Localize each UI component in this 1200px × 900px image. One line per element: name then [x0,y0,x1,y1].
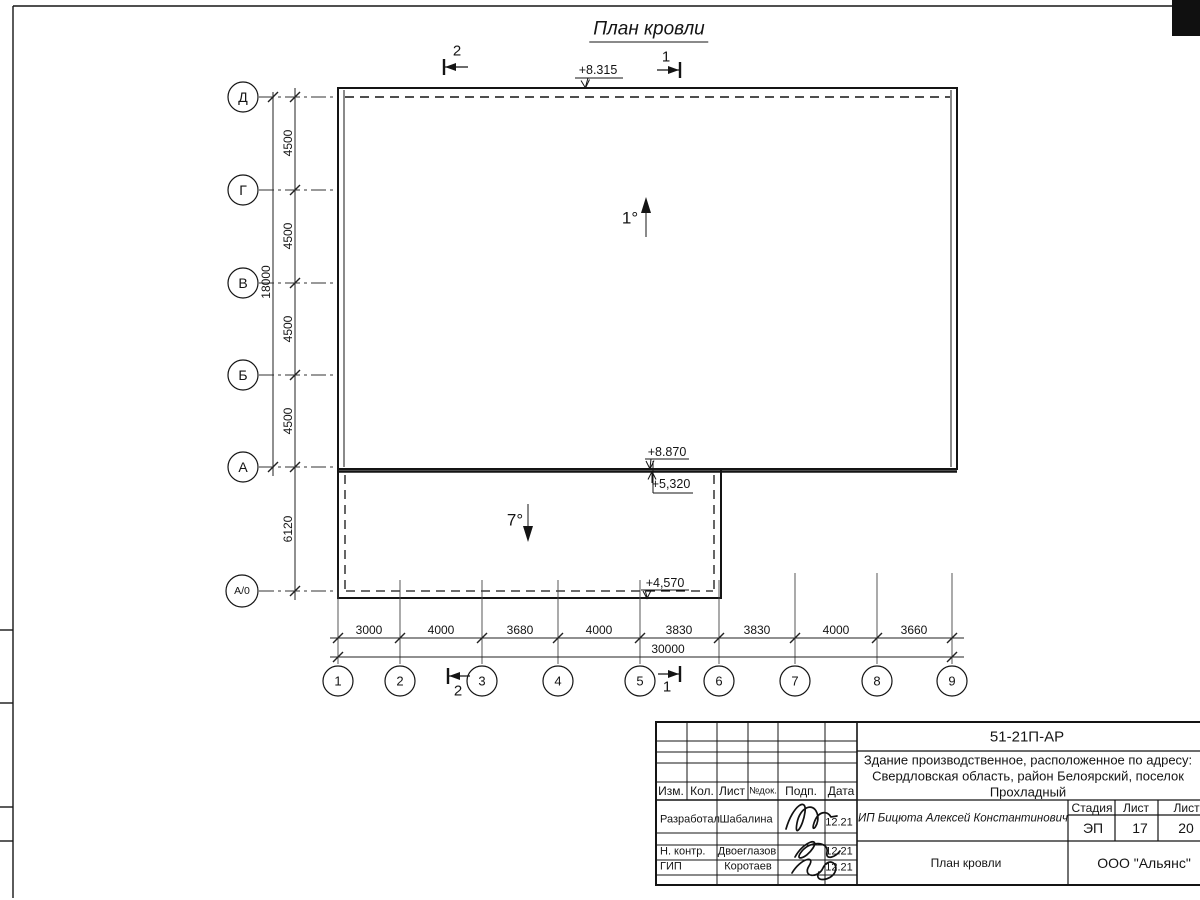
row-axis-label: А [238,460,247,474]
tb-stage-header: Стадия [1072,802,1113,814]
tb-date: 12.21 [825,847,853,858]
tb-header-list: Лист [719,785,745,797]
slope-label-annex: 7° [507,512,523,529]
elevation-label-annex-edge: +4,570 [646,577,685,590]
page-title: План кровли [589,20,708,43]
dim-bottom: 3830 [666,624,693,636]
tb-name: Шабалина [719,815,772,826]
col-axis-label: 9 [948,675,955,688]
tb-date: 12.21 [825,818,853,829]
dim-left: 4500 [282,316,294,343]
tb-sheet-value: 17 [1132,821,1148,835]
dim-bottom: 4000 [586,624,613,636]
col-axis-label: 2 [396,675,403,688]
tb-project-line: Свердловская область, район Белоярский, … [872,770,1184,783]
row-axis-label: Д [238,90,247,104]
dim-bottom: 3660 [901,624,928,636]
tb-project-line: Здание производственное, расположенное п… [864,754,1192,767]
tb-name: Коротаев [724,862,772,873]
tb-header-kol: Кол. [690,785,714,797]
tb-role: Н. контр. [660,847,705,858]
tb-sheets-value: 20 [1178,821,1194,835]
tb-stage-value: ЭП [1083,821,1103,835]
main-roof-outline [338,88,957,472]
slope-arrow-main [641,197,651,237]
elevation-label-annex-roof: +5,320 [652,478,691,491]
tb-role: ГИП [660,862,682,873]
row-axis-label: Б [238,368,247,382]
elevation-leader-wall-top [645,459,689,469]
slope-label-main: 1° [622,210,638,227]
dim-left: 4500 [282,223,294,250]
dim-bottom: 3000 [356,624,383,636]
dim-bottom: 3680 [507,624,534,636]
tb-date: 12.21 [825,863,853,874]
elevation-leader-top [575,78,623,88]
drawing-sheet: План кровли 2 1 2 1 +8.315 +8.870 +5,320… [0,0,1200,900]
tb-client: ИП Бицюта Алексей Константинович [858,813,1068,825]
dim-left-total: 18000 [260,265,272,298]
sheet-corner-mark [1172,0,1200,36]
col-axis-label: 8 [873,675,880,688]
dim-left: 4500 [282,408,294,435]
tb-project-line: Прохладный [990,786,1066,799]
col-axis-label: 5 [636,675,643,688]
tb-doc-title: План кровли [931,857,1002,869]
section-label-2-top: 2 [453,44,461,59]
tb-sheet-header: Лист [1123,802,1149,814]
dim-bottom: 4000 [428,624,455,636]
row-axis-label: Г [239,183,247,197]
tb-doc-number: 51-21П-АР [990,730,1064,745]
tb-name: Двоеглазов [718,847,776,858]
dim-bottom: 4000 [823,624,850,636]
tb-role: Разработал [660,815,720,826]
dim-left: 4500 [282,130,294,157]
tb-sheets-header: Листов [1174,802,1200,814]
dim-bottom: 3830 [744,624,771,636]
dim-bottom-total: 30000 [651,643,684,655]
row-axis-lines [259,97,335,591]
section-label-1-top: 1 [662,50,670,65]
elevation-label-wall-top: +8.870 [648,446,687,459]
col-axis-label: 7 [791,675,798,688]
col-axis-label: 4 [554,675,561,688]
tb-header-ndok: №док. [749,786,777,796]
section-mark-2-top [444,59,468,75]
section-label-1-bottom: 1 [663,680,671,695]
row-axis-label: В [238,276,247,290]
col-axis-label: 6 [715,675,722,688]
tb-header-data: Дата [828,785,855,797]
dim-left-annex: 6120 [282,516,294,543]
slope-arrow-annex [523,504,533,542]
tb-header-podp: Подп. [785,785,817,797]
col-axis-label: 3 [478,675,485,688]
tb-header-izm: Изм. [658,785,684,797]
dimension-lines-bottom [330,633,964,662]
row-axis-label: А/0 [234,586,250,597]
elevation-label-top: +8.315 [579,64,618,77]
col-axis-label: 1 [334,675,341,688]
section-label-2-bottom: 2 [454,684,462,699]
tb-company: ООО "Альянс" [1097,856,1191,870]
